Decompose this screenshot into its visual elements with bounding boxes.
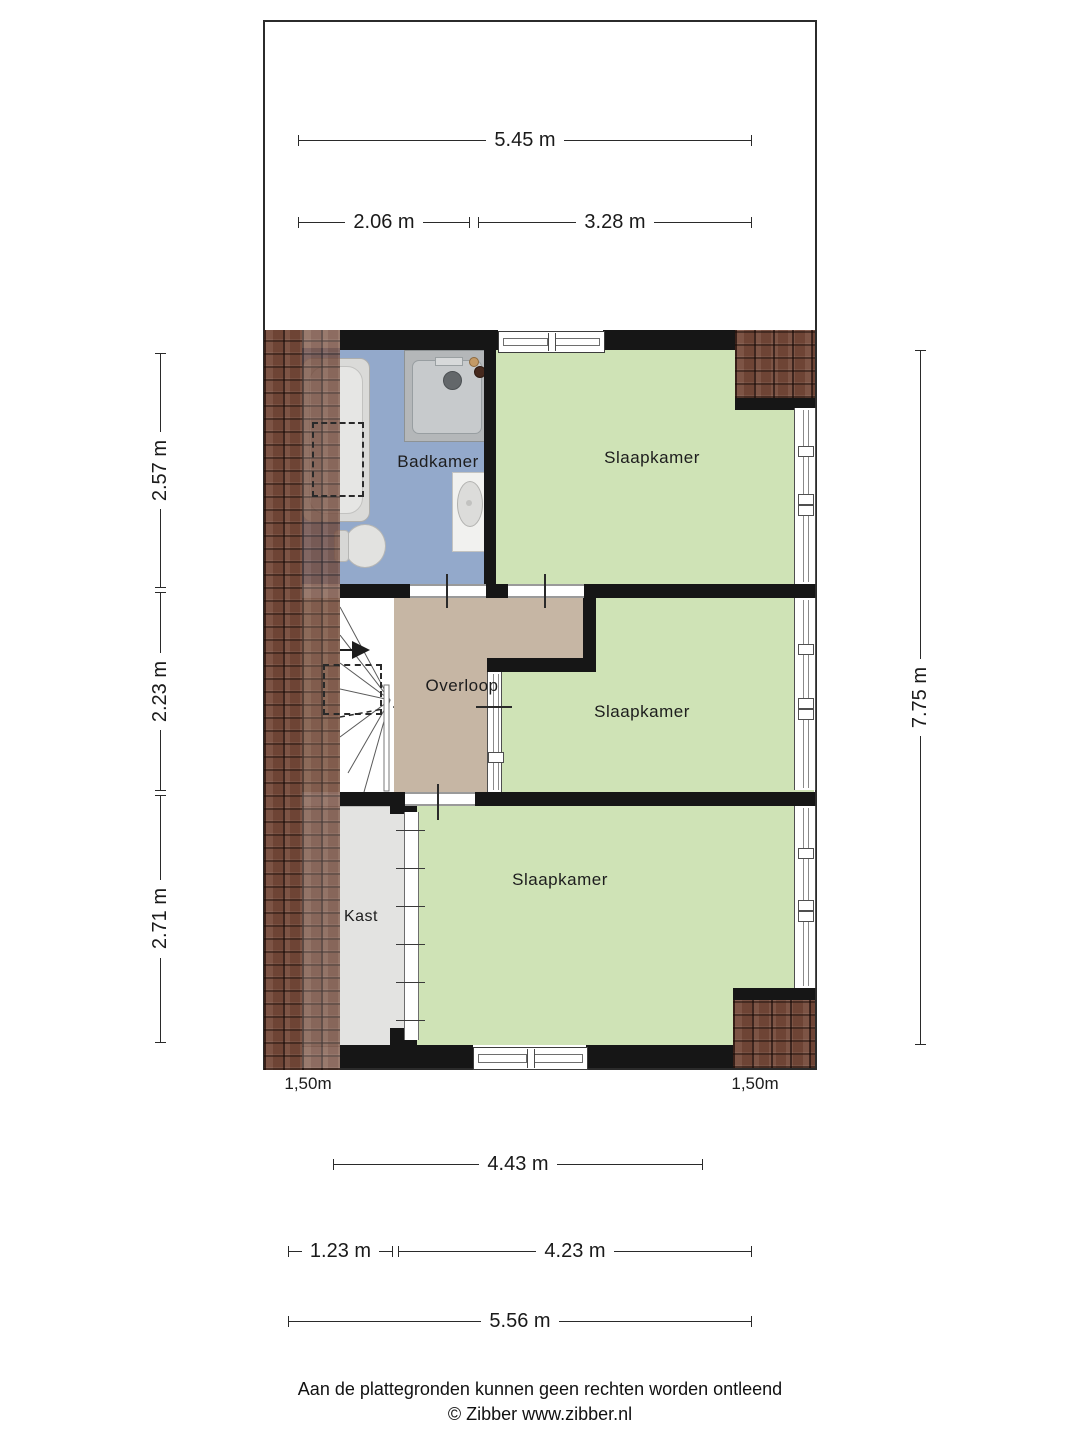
room-label-kast: Kast <box>321 908 401 926</box>
window-divider <box>798 709 814 720</box>
dimension-label: 5.56 m <box>481 1310 558 1333</box>
room-label-overloop: Overloop <box>392 676 532 696</box>
dimension-left-271: 2.71 m <box>154 795 166 1043</box>
folding-door-tick <box>396 982 425 983</box>
room-slaapkamer-2-upper <box>596 598 814 672</box>
folding-door-tick <box>396 944 425 945</box>
dimension-label: 7.75 m <box>909 659 932 736</box>
shower-tray <box>412 360 482 434</box>
room-label-slaapkamer-3: Slaapkamer <box>470 870 650 890</box>
roof-top-right <box>735 330 815 398</box>
window-east-slaapkamer-3 <box>794 806 816 988</box>
window-mullion <box>527 1049 535 1068</box>
window-pane <box>555 338 600 346</box>
window-divider <box>798 911 814 922</box>
dimension-label: 5.45 m <box>486 129 563 152</box>
window-east-slaapkamer-2 <box>794 598 816 790</box>
door-divider <box>488 752 504 763</box>
window-divider <box>798 505 814 516</box>
dimension-label: 2.71 m <box>149 880 172 957</box>
window-east-slaapkamer-1 <box>794 408 816 584</box>
shower-head-icon <box>443 371 462 390</box>
footer-credit: © Zibber www.zibber.nl <box>0 1404 1080 1425</box>
folding-door-tick <box>396 830 425 831</box>
window-divider <box>798 494 814 505</box>
wall-bottom-right <box>586 1045 733 1068</box>
window-divider <box>798 848 814 859</box>
headroom-dashed-badkamer <box>312 422 364 497</box>
wall-top-left <box>340 330 498 350</box>
sink <box>452 472 486 552</box>
floorplan-page: { "rooms": [ {"id": "badkamer", "label":… <box>0 0 1080 1440</box>
window-divider <box>798 698 814 709</box>
room-overloop-upper-right <box>487 598 583 658</box>
dimension-label: 1.23 m <box>302 1240 379 1263</box>
dimension-label: 4.23 m <box>536 1240 613 1263</box>
window-mullion <box>548 333 556 351</box>
door-badkamer-leaf <box>446 574 448 608</box>
wall-mid-a <box>340 584 410 598</box>
shower-arm <box>435 357 463 366</box>
door-badkamer <box>410 584 486 598</box>
stairs-direction-arrow-icon <box>352 641 370 659</box>
dimension-label: 2.23 m <box>149 653 172 730</box>
window-glazing <box>803 600 809 788</box>
footer-disclaimer: Aan de plattegronden kunnen geen rechten… <box>0 1379 1080 1400</box>
window-divider <box>798 644 814 655</box>
wall-lower-b <box>475 792 815 806</box>
wall-overloop-jog <box>487 658 596 672</box>
door-slaapkamer-2-leaf <box>476 706 512 708</box>
wall-cap-roof-bottom-right <box>733 988 815 1000</box>
dimension-left-257: 2.57 m <box>154 353 166 588</box>
wardrobe-folding-door <box>404 812 419 1040</box>
window-glazing <box>803 808 809 986</box>
folding-door-tick <box>396 906 425 907</box>
window-pane <box>503 338 548 346</box>
dimension-left-223: 2.23 m <box>154 592 166 791</box>
dimension-label: 4.43 m <box>479 1153 556 1176</box>
wall-mid-b <box>486 584 508 598</box>
room-label-slaapkamer-2: Slaapkamer <box>552 702 732 722</box>
dimension-bottom-123: 1.23 m <box>288 1245 393 1257</box>
door-slaapkamer-3-leaf <box>437 784 439 820</box>
eaves-label-right: 1,50m <box>715 1074 795 1094</box>
eaves-label-left: 1,50m <box>268 1074 348 1094</box>
dimension-top-206: 2.06 m <box>298 216 470 228</box>
room-label-slaapkamer-1: Slaapkamer <box>562 448 742 468</box>
roof-bottom-right <box>733 1000 815 1068</box>
dimension-bottom-443: 4.43 m <box>333 1158 703 1170</box>
room-slaapkamer-2 <box>500 672 814 792</box>
window-divider <box>798 446 814 457</box>
dimension-top-545: 5.45 m <box>298 134 752 146</box>
window-divider <box>798 900 814 911</box>
window-bottom <box>473 1047 588 1070</box>
headroom-dashed-stairs <box>323 664 382 715</box>
wall-top-right <box>603 330 735 350</box>
folding-door-tick <box>396 868 425 869</box>
wall-bottom-left <box>340 1045 473 1068</box>
dimension-bottom-423: 4.23 m <box>398 1245 752 1257</box>
wall-mid-c <box>584 584 815 598</box>
sink-drain <box>466 500 472 506</box>
room-label-badkamer: Badkamer <box>368 452 508 472</box>
dimension-top-328: 3.28 m <box>478 216 752 228</box>
dimension-label: 3.28 m <box>576 211 653 234</box>
door-slaapkamer-1-leaf <box>544 574 546 608</box>
dimension-bottom-556: 5.56 m <box>288 1315 752 1327</box>
window-top <box>498 331 605 353</box>
toilet <box>344 524 386 568</box>
shower <box>404 350 490 442</box>
dimension-label: 2.06 m <box>345 211 422 234</box>
folding-door-tick <box>396 1020 425 1021</box>
dimension-right-775: 7.75 m <box>914 350 926 1045</box>
door-slaapkamer-3 <box>405 792 475 806</box>
window-pane <box>534 1054 583 1063</box>
roof-left <box>264 330 302 1070</box>
door-slaapkamer-1 <box>508 584 584 598</box>
dimension-label: 2.57 m <box>149 432 172 509</box>
window-pane <box>478 1054 527 1063</box>
